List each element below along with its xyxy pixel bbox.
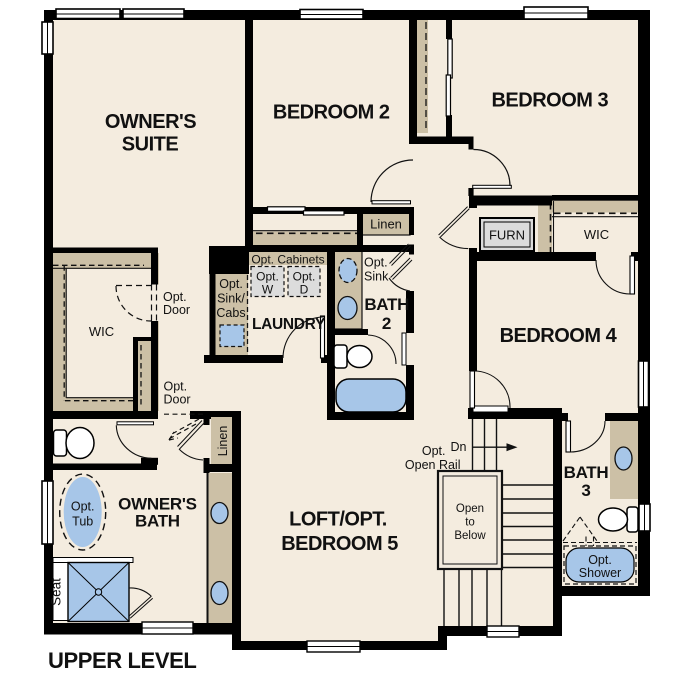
svg-text:WIC: WIC: [89, 324, 114, 339]
svg-text:Seat: Seat: [49, 578, 64, 606]
svg-text:Door: Door: [163, 303, 190, 317]
svg-text:BEDROOM 2: BEDROOM 2: [273, 102, 390, 124]
svg-text:Opt.: Opt.: [293, 270, 316, 284]
svg-text:BEDROOM 5: BEDROOM 5: [281, 533, 398, 555]
svg-text:Dn: Dn: [451, 440, 467, 454]
svg-text:Opt.: Opt.: [164, 380, 188, 394]
svg-text:Opt.: Opt.: [422, 444, 446, 458]
svg-text:Opt. Cabinets: Opt. Cabinets: [251, 253, 324, 267]
svg-text:OWNER'S: OWNER'S: [105, 111, 196, 133]
svg-text:BEDROOM 3: BEDROOM 3: [491, 90, 608, 112]
svg-text:UPPER LEVEL: UPPER LEVEL: [48, 648, 196, 673]
svg-text:Opt.: Opt.: [364, 256, 388, 270]
svg-text:Sink: Sink: [364, 270, 389, 284]
svg-text:Sink/: Sink/: [217, 292, 245, 306]
svg-text:Opt.: Opt.: [588, 553, 612, 567]
svg-text:to: to: [465, 517, 475, 529]
svg-text:Below: Below: [454, 530, 486, 542]
svg-text:Cabs: Cabs: [216, 306, 245, 320]
svg-text:LOFT/OPT.: LOFT/OPT.: [289, 509, 387, 531]
svg-text:Door: Door: [164, 393, 191, 407]
svg-text:Open Rail: Open Rail: [405, 458, 461, 472]
svg-text:Tub: Tub: [72, 515, 93, 529]
svg-text:Open: Open: [456, 503, 484, 515]
svg-text:WIC: WIC: [584, 227, 609, 242]
svg-text:W: W: [262, 283, 274, 297]
svg-text:Linen: Linen: [216, 426, 230, 457]
svg-text:Opt.: Opt.: [163, 290, 187, 304]
svg-text:Opt.: Opt.: [219, 277, 243, 291]
svg-text:BEDROOM 4: BEDROOM 4: [500, 325, 618, 347]
svg-text:BATH: BATH: [135, 512, 180, 531]
svg-text:FURN: FURN: [489, 228, 525, 243]
svg-text:3: 3: [581, 481, 590, 500]
svg-text:Linen: Linen: [370, 217, 402, 232]
svg-text:LAUNDRY: LAUNDRY: [252, 316, 326, 333]
svg-text:BATH: BATH: [364, 295, 409, 314]
svg-text:SUITE: SUITE: [122, 134, 179, 156]
svg-text:BATH: BATH: [564, 463, 609, 482]
svg-text:Shower: Shower: [579, 566, 621, 580]
svg-text:2: 2: [382, 314, 391, 333]
svg-text:Opt.: Opt.: [256, 270, 279, 284]
svg-text:D: D: [300, 283, 309, 297]
svg-text:Opt.: Opt.: [71, 500, 95, 514]
